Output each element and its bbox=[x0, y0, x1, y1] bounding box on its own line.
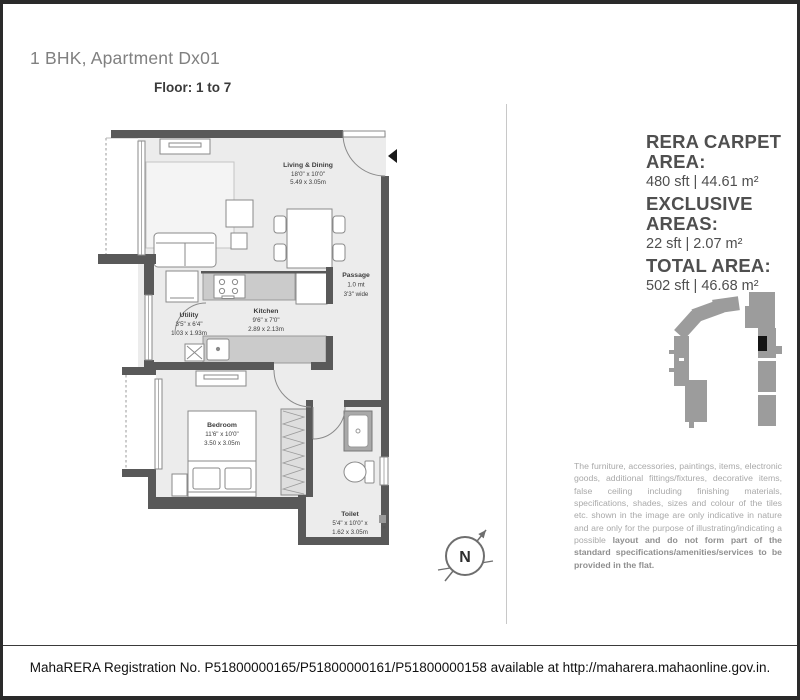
svg-text:3'3" wide: 3'3" wide bbox=[344, 291, 369, 298]
tv-unit bbox=[160, 139, 210, 154]
sofa bbox=[154, 233, 216, 267]
rera-carpet-area-value: 480 sft | 44.61 m² bbox=[646, 172, 796, 192]
area-panel: RERA CARPET AREA: 480 sft | 44.61 m² EXC… bbox=[646, 132, 796, 298]
north-compass-icon: N bbox=[428, 518, 508, 603]
floor-plan: Living & Dining 18'0" x 10'0" 5.49 x 3.0… bbox=[98, 117, 408, 565]
svg-text:Living & Dining: Living & Dining bbox=[283, 162, 333, 169]
bedroom-window bbox=[155, 379, 162, 469]
svg-text:11'6" x 10'0": 11'6" x 10'0" bbox=[205, 431, 238, 438]
svg-text:Bedroom: Bedroom bbox=[207, 422, 237, 429]
svg-text:Utility: Utility bbox=[180, 312, 199, 319]
key-plan-unit-highlight bbox=[758, 336, 767, 351]
svg-text:Toilet: Toilet bbox=[341, 511, 359, 518]
disclaimer-normal: The furniture, accessories, paintings, i… bbox=[574, 461, 782, 545]
stove-icon bbox=[214, 275, 245, 299]
utility-sink-icon bbox=[185, 344, 204, 361]
svg-text:1.62 x 3.05m: 1.62 x 3.05m bbox=[332, 529, 368, 536]
brochure-page: 1 BHK, Apartment Dx01 Floor: 1 to 7 bbox=[0, 0, 800, 700]
wc-icon bbox=[344, 461, 374, 483]
svg-text:18'0" x 10'0": 18'0" x 10'0" bbox=[291, 171, 325, 178]
washbasin-icon bbox=[344, 411, 372, 451]
toilet-window bbox=[380, 457, 388, 485]
wardrobe bbox=[281, 409, 307, 495]
svg-text:5'4" x 10'0" x: 5'4" x 10'0" x bbox=[332, 520, 368, 527]
total-area-label: TOTAL AREA: bbox=[646, 256, 796, 276]
compass-n-label: N bbox=[459, 549, 471, 566]
living-window bbox=[138, 141, 145, 255]
balcony-bedroom bbox=[126, 375, 156, 471]
page-title: 1 BHK, Apartment Dx01 bbox=[30, 48, 220, 69]
exclusive-areas-value: 22 sft | 2.07 m² bbox=[646, 234, 796, 254]
svg-text:1.0 mt: 1.0 mt bbox=[347, 282, 364, 289]
floor-range-label: Floor: 1 to 7 bbox=[154, 80, 231, 95]
utility-window bbox=[145, 295, 152, 360]
svg-text:5.49 x 3.05m: 5.49 x 3.05m bbox=[290, 179, 326, 186]
kitchen-sink-icon bbox=[207, 339, 229, 360]
svg-text:Kitchen: Kitchen bbox=[254, 308, 279, 315]
rera-carpet-area-label: RERA CARPET AREA: bbox=[646, 132, 796, 172]
disclaimer-text: The furniture, accessories, paintings, i… bbox=[574, 460, 782, 571]
exclusive-areas-label: EXCLUSIVE AREAS: bbox=[646, 194, 796, 234]
svg-text:1.03 x 1.93m: 1.03 x 1.93m bbox=[171, 330, 207, 337]
bedside-table bbox=[172, 474, 187, 496]
balcony-living bbox=[106, 138, 138, 254]
svg-text:Passage: Passage bbox=[342, 272, 370, 279]
maharera-registration-text: MahaRERA Registration No. P51800000165/P… bbox=[3, 660, 797, 675]
svg-text:3'5" x 6'4": 3'5" x 6'4" bbox=[175, 321, 202, 328]
svg-text:2.89 x 2.13m: 2.89 x 2.13m bbox=[248, 326, 284, 333]
fridge bbox=[296, 273, 327, 304]
bedroom-label: Bedroom 11'6" x 10'0" 3.50 x 3.05m bbox=[204, 422, 240, 447]
entrance-marker-icon bbox=[388, 149, 397, 163]
footer-divider bbox=[3, 645, 797, 646]
key-plan bbox=[669, 288, 785, 432]
washing-machine bbox=[166, 271, 198, 302]
svg-text:3.50 x 3.05m: 3.50 x 3.05m bbox=[204, 440, 240, 447]
svg-text:9'6" x 7'0": 9'6" x 7'0" bbox=[252, 317, 279, 324]
dresser bbox=[196, 371, 246, 386]
